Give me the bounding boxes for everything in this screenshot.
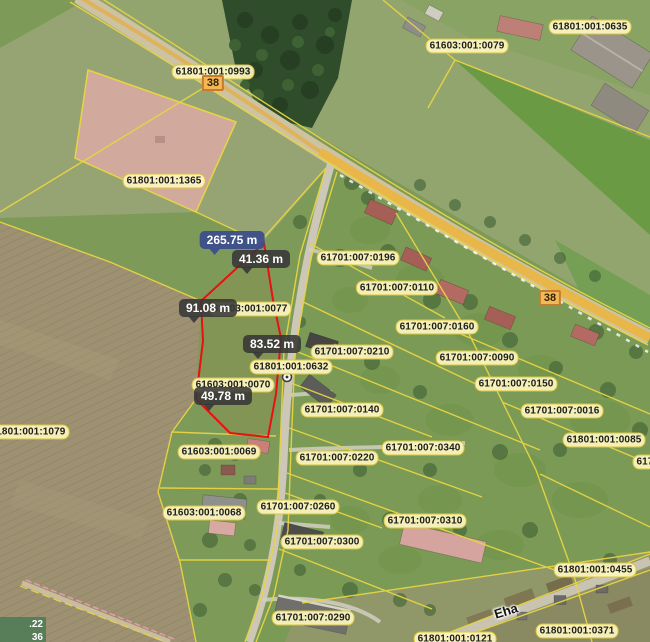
cadastral-parcel-label[interactable]: 61801:001:1079 [0,425,69,440]
cadastral-parcel-label[interactable]: 61701:007:0220 [296,451,379,466]
measurement-label: 265.75 m [200,231,265,249]
cadastral-parcel-label[interactable]: 61701:007:0110 [356,281,438,296]
cadastral-parcel-label[interactable]: 61701:007:0140 [301,403,384,418]
cadastral-parcel-label[interactable]: 61603:001:0068 [163,506,246,521]
street-name-label: Eha [492,600,519,621]
cadastral-parcel-label[interactable]: 61701:007:0090 [436,351,519,366]
coordinate-readout: .22 36 [0,617,46,642]
cadastral-parcel-label[interactable]: 61701:007:0300 [281,535,364,550]
cadastral-parcel-label[interactable]: 61701:007:0210 [311,345,394,360]
cadastral-parcel-label[interactable]: 61801:001:0455 [554,563,637,578]
cadastral-parcel-label[interactable]: 61701:007:0290 [272,611,355,626]
cadastral-parcel-label[interactable]: 61701:007:0150 [475,377,558,392]
cadastral-parcel-label[interactable]: 61603:001:0069 [178,445,261,460]
cadastral-parcel-label[interactable]: 61701:007:0260 [257,500,340,515]
cadastral-parcel-label[interactable]: 61801:001:0371 [536,624,619,639]
label-layer: 61801:001:099361603:001:007961801:001:06… [0,0,650,642]
measurement-label: 41.36 m [232,250,290,268]
cadastral-parcel-label[interactable]: 61701:007:0196 [317,251,400,266]
cadastral-parcel-label[interactable]: 61603:001:0079 [426,39,509,54]
measurement-label: 91.08 m [179,299,237,317]
coordinate-line-1: .22 [0,618,43,631]
cadastral-parcel-label[interactable]: 61701:00 [632,455,650,470]
cadastral-parcel-label[interactable]: 61701:007:0310 [384,514,467,529]
cadastral-parcel-label[interactable]: 61801:001:1365 [123,174,206,189]
cadastral-parcel-label[interactable]: 61801:001:0632 [250,360,333,375]
cadastral-parcel-label[interactable]: 61701:007:0160 [396,320,479,335]
map-canvas[interactable]: 61801:001:099361603:001:007961801:001:06… [0,0,650,642]
measurement-label: 83.52 m [243,335,301,353]
cadastral-parcel-label[interactable]: 61801:001:0635 [549,20,632,35]
cadastral-parcel-label[interactable]: 61801:001:0121 [414,632,497,642]
measurement-label: 49.78 m [194,387,252,405]
road-number-badge: 38 [202,75,224,91]
cadastral-parcel-label[interactable]: 61701:007:0340 [382,441,465,456]
cadastral-parcel-label[interactable]: 61801:001:0085 [563,433,646,448]
cadastral-parcel-label[interactable]: 61701:007:0016 [521,404,604,419]
road-number-badge: 38 [539,290,561,306]
coordinate-line-2: 36 [0,631,43,642]
